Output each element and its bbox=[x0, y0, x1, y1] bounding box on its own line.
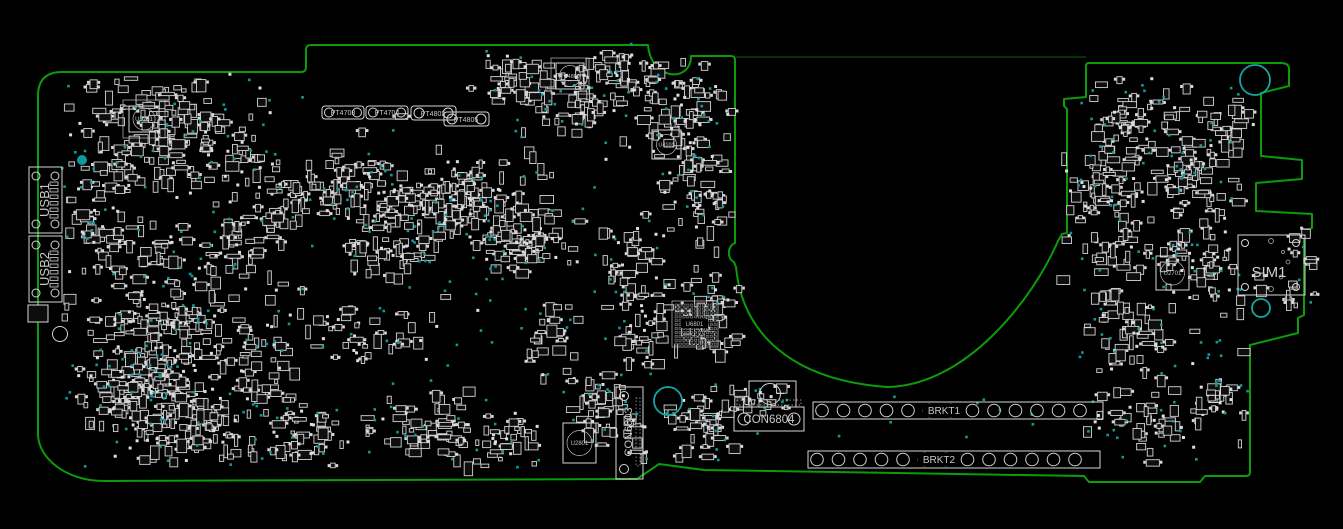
boardview-canvas: USB1 USB2 U5701 PT4708 PT4704 PT4802 PT4… bbox=[0, 0, 1343, 529]
pt4708-label: PT4708 bbox=[331, 110, 356, 117]
pt4802-label: PT4802 bbox=[421, 111, 446, 118]
usb2-label: USB2 bbox=[37, 252, 52, 286]
sim-label: SIM1 bbox=[1251, 264, 1286, 281]
brkt2-label: BRKT2 bbox=[923, 455, 956, 466]
edge-pad bbox=[28, 305, 48, 322]
usb2-connector[interactable]: USB2 bbox=[29, 236, 62, 302]
mount-hole bbox=[77, 155, 87, 165]
component-scatter bbox=[62, 51, 1319, 476]
brkt1-label: BRKT1 bbox=[928, 406, 961, 417]
u4101-label: U4101 bbox=[658, 143, 674, 149]
pt4805-label: PT4805 bbox=[454, 117, 479, 124]
mount-hole bbox=[1252, 299, 1270, 317]
con6803-label: CON6803 bbox=[623, 408, 635, 457]
pu4800-label: PU4800 bbox=[560, 74, 580, 80]
u5701-label: U5701 bbox=[135, 117, 153, 123]
pt4708-test-connector[interactable]: PT4708 bbox=[322, 106, 364, 119]
pt4805-test-connector[interactable]: PT4805 bbox=[444, 112, 489, 126]
u5701-chip[interactable]: U5701 bbox=[123, 100, 165, 138]
pt4802-test-connector[interactable]: PT4802 bbox=[411, 106, 456, 120]
pt4704-test-connector[interactable]: PT4704 bbox=[366, 106, 408, 119]
u2801-label: U2801 bbox=[571, 441, 589, 447]
brkt1-bracket: BRKT1 bbox=[813, 402, 1103, 419]
mount-hole bbox=[1240, 65, 1270, 95]
u2701-chip[interactable]: U2701 bbox=[1156, 256, 1189, 290]
u6801-bga[interactable]: U6801 bbox=[672, 301, 718, 347]
usb1-connector[interactable]: USB1 bbox=[29, 167, 62, 233]
u6801-label: U6801 bbox=[686, 322, 704, 328]
usb1-label: USB1 bbox=[37, 183, 52, 217]
pt4704-label: PT4704 bbox=[375, 110, 400, 117]
brkt2-bracket: BRKT2 bbox=[808, 451, 1100, 468]
fiducial-ring bbox=[53, 327, 68, 342]
pcb-layout-drawing: USB1 USB2 U5701 PT4708 PT4704 PT4802 PT4… bbox=[0, 0, 1343, 529]
con6804-label: CON6804 bbox=[743, 414, 795, 426]
u2701-label: U2701 bbox=[1164, 271, 1182, 277]
